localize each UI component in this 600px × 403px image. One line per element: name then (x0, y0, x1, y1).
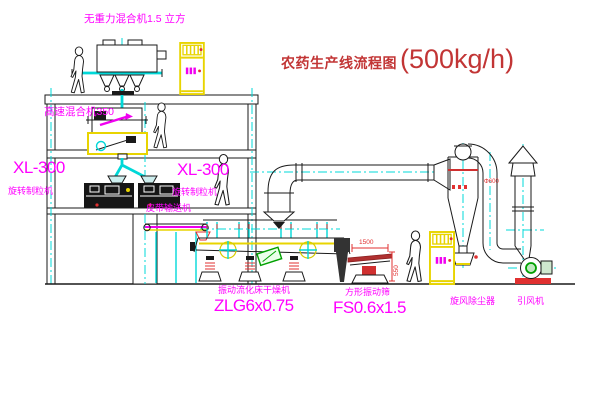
title-capacity: (500kg/h) (400, 44, 514, 75)
worker-middle-floor (154, 103, 167, 148)
label-belt-conveyor: 皮带输送机 (146, 204, 191, 213)
control-cabinet-lower (430, 232, 454, 284)
dim-sieve-length: 1500 (359, 240, 373, 247)
cad-flow-diagram: 农药生产线流程图 (500kg/h) 无重力混合机1.5 立方 高速混合机350… (0, 0, 600, 403)
label-sieve-name: 方形振动筛 (345, 288, 390, 297)
square-sieve-unit (348, 244, 395, 283)
label-gravity-mixer: 无重力混合机1.5 立方 (84, 14, 186, 25)
worker-top-floor (71, 47, 84, 93)
label-cyclone: 旋风除尘器 (450, 297, 495, 306)
exhaust-duct (264, 159, 450, 229)
label-xl300-left: XL-300 (13, 159, 65, 176)
label-granulator-left: 旋转制粒机 (8, 187, 53, 196)
label-dryer-model: ZLG6x0.75 (214, 297, 294, 314)
diagram-title: 农药生产线流程图 (500kg/h) (281, 44, 514, 75)
granulator-left-unit (84, 176, 134, 208)
vibration-motor (257, 247, 282, 265)
label-xl300-right: XL-300 (177, 161, 229, 178)
dryer-ports (207, 222, 327, 238)
label-dryer-name: 振动流化床干燥机 (218, 286, 290, 295)
label-fan: 引风机 (517, 297, 544, 306)
dim-pipe-diameter: Φ600 (484, 179, 499, 185)
induced-draft-fan-unit (515, 258, 552, 285)
worker-near-sieve (407, 231, 422, 281)
dim-sieve-height: 550 (394, 265, 401, 276)
control-cabinet-upper (180, 43, 204, 94)
dryer-springs (199, 256, 305, 281)
title-chinese: 农药生产线流程图 (281, 53, 397, 73)
label-high-speed-mixer: 高速混合机350 (44, 107, 114, 118)
label-sieve-model: FS0.6x1.5 (333, 299, 406, 316)
label-granulator-right: 旋转制粒机 (172, 188, 217, 197)
